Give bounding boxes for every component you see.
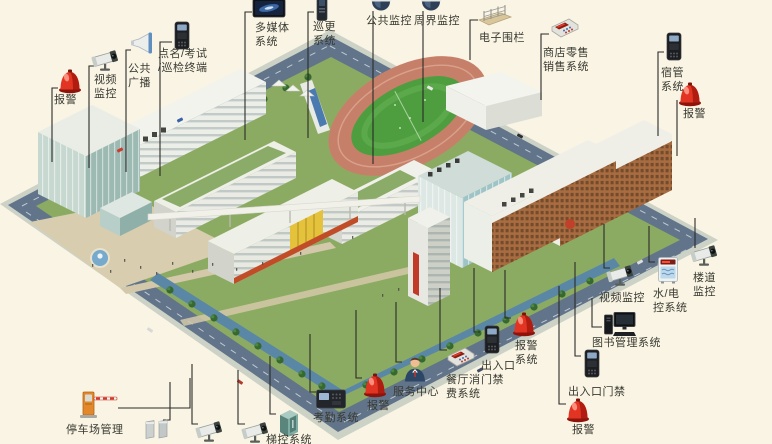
water-electric-control-label: 水/电 控系统 <box>653 287 688 316</box>
parking-management-leader-line <box>118 378 190 408</box>
entrance-access-center-label: 出入口 门禁 <box>481 359 516 388</box>
attendance-system-label: 考勤系统 <box>313 411 359 425</box>
perimeter-surveillance-label: 周界监控 <box>414 14 460 28</box>
alarm-top-left-label: 报警 <box>54 93 77 107</box>
patrol-system-label: 巡更 系统 <box>313 20 336 49</box>
service-center-label: 服务中心 <box>393 385 439 399</box>
electronic-fence-label: 电子围栏 <box>479 31 525 45</box>
electronic-fence-leader-line <box>470 20 478 60</box>
alarm-bottom-right-label: 报警 <box>572 423 595 437</box>
public-broadcast-label: 公共 广播 <box>128 62 151 91</box>
dorm-management-system-label: 宿管 系统 <box>661 66 684 95</box>
parking-management-label: 停车场管理 <box>66 423 124 437</box>
pedestrian-gates-leader-line <box>163 382 170 420</box>
video-monitor-top-left-label: 视频 监控 <box>94 73 117 102</box>
retail-pos-system-label: 商店零售 销售系统 <box>543 46 589 75</box>
public-surveillance-label: 公共监控 <box>366 14 412 28</box>
canteen-payment-system-label: 餐厅消 费系统 <box>446 373 481 402</box>
campus-illustration <box>0 0 772 444</box>
rollcall-exam-patrol-terminal-label: 点名/考试 /巡检终端 <box>158 47 208 76</box>
alarm-system-label: 报警 系统 <box>515 339 538 368</box>
camera-bottom-2-leader-line <box>192 364 198 424</box>
camera-bottom-1-leader-line <box>238 370 245 424</box>
elevator-control-system-label: 梯控系统 <box>266 433 312 444</box>
video-monitor-right-label: 视频监控 <box>599 291 645 305</box>
library-management-system-label: 图书管理系统 <box>592 336 661 350</box>
alarm-bottom-label: 报警 <box>367 399 390 413</box>
multimedia-system-label: 多媒体 系统 <box>255 21 290 50</box>
campus-security-diagram: 报警视频 监控公共 广播点名/考试 /巡检终端多媒体 系统巡更 系统公共监控周界… <box>0 0 772 444</box>
alarm-top-right-label: 报警 <box>683 107 706 121</box>
entrance-access-right-label: 出入口门禁 <box>568 385 626 399</box>
corridor-monitor-label: 楼道 监控 <box>693 271 716 300</box>
